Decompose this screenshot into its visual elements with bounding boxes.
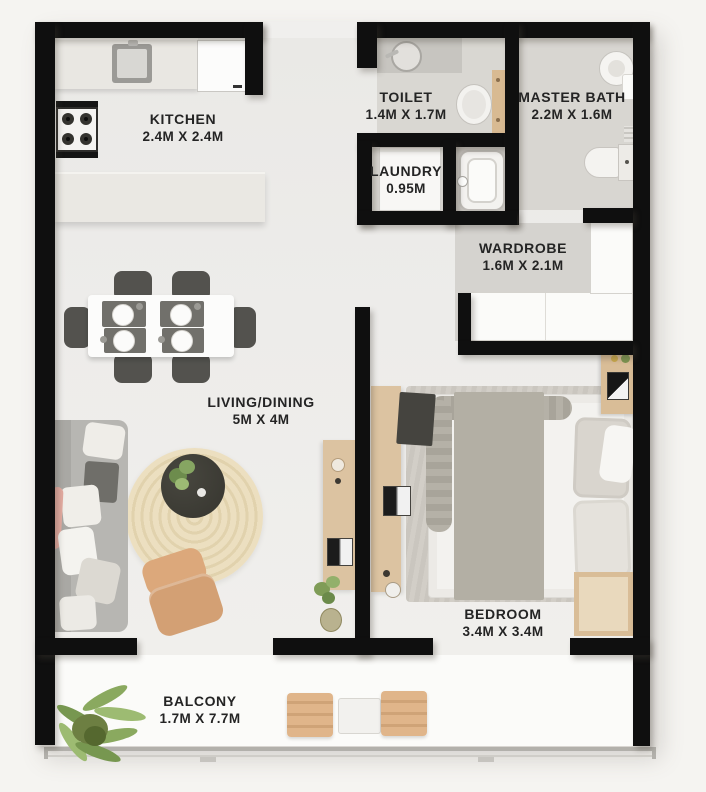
wall-left xyxy=(35,22,55,745)
sink-basin xyxy=(117,49,147,78)
room-dims: 3.4M X 3.4M xyxy=(463,623,544,640)
kitchen-sink xyxy=(112,44,152,83)
room-dims: 1.6M X 2.1M xyxy=(479,257,567,274)
room-label-bedroom: BEDROOM 3.4M X 3.4M xyxy=(463,606,544,640)
decor-knob xyxy=(331,458,345,472)
balcony-table xyxy=(338,698,381,734)
plant-icon xyxy=(175,478,189,490)
plant-pot xyxy=(320,608,342,632)
decor-dot xyxy=(335,478,341,484)
plant-icon xyxy=(621,354,630,363)
wall-top-left xyxy=(35,22,263,38)
wall-bottom-right xyxy=(570,638,650,655)
wardrobe-closet-column xyxy=(590,217,633,294)
toilet-seat xyxy=(462,90,486,119)
wall-bottom-left xyxy=(35,638,137,655)
burner-icon xyxy=(80,133,92,145)
phone xyxy=(607,372,629,400)
room-dims: 0.95M xyxy=(370,180,442,197)
cup-icon xyxy=(100,336,107,343)
balcony-stool xyxy=(287,693,333,737)
plant-icon xyxy=(179,460,195,474)
room-name: LAUNDRY xyxy=(370,163,442,180)
closet-division xyxy=(545,293,546,340)
room-name: WARDROBE xyxy=(479,240,567,257)
placemat xyxy=(162,328,204,353)
room-label-wardrobe: WARDROBE 1.6M X 2.1M xyxy=(479,240,567,274)
flush-button xyxy=(625,160,629,164)
fridge xyxy=(197,40,247,92)
tv-console-bedroom xyxy=(371,386,401,592)
room-name: BEDROOM xyxy=(463,606,544,623)
speaker xyxy=(383,486,411,516)
plant-icon xyxy=(322,592,335,604)
dining-chair xyxy=(114,353,152,383)
fern-center xyxy=(84,726,106,746)
bath-toilet xyxy=(584,147,620,178)
decor-dot xyxy=(383,570,390,577)
wall-masterbath-bottom xyxy=(583,208,633,223)
bench-cushion xyxy=(579,577,628,631)
room-dims: 1.7M X 7.7M xyxy=(160,710,241,727)
door-hinge xyxy=(496,78,500,82)
wall-top-right xyxy=(357,22,648,38)
sofa-pillow xyxy=(82,421,126,460)
room-label-kitchen: KITCHEN 2.4M X 2.4M xyxy=(143,111,224,145)
room-name: MASTER BATH xyxy=(518,89,625,106)
railing-tab xyxy=(200,757,216,762)
wall-living-bedroom xyxy=(355,307,370,655)
cup-icon xyxy=(197,488,206,497)
stove-fin-bottom xyxy=(56,152,98,158)
floor-plant xyxy=(310,574,354,636)
bathtub-basin xyxy=(467,158,497,203)
cup-icon xyxy=(136,303,143,310)
placemat xyxy=(160,301,204,327)
toilet-fixture xyxy=(456,84,492,125)
dining-table xyxy=(88,295,234,357)
railing-tab xyxy=(478,757,494,762)
placemat xyxy=(102,301,146,327)
bathtub-faucet-icon xyxy=(457,176,468,187)
coffee-table xyxy=(161,454,225,518)
placemat xyxy=(104,328,146,353)
toilet-sink xyxy=(391,41,422,72)
decor-gold-dot xyxy=(611,355,618,362)
nightstand xyxy=(601,350,635,414)
room-dims: 1.4M X 1.7M xyxy=(366,106,447,123)
wall-bottom-center xyxy=(273,638,433,655)
bathtub xyxy=(459,150,505,211)
bedroom-bench xyxy=(574,572,633,636)
toilet-door xyxy=(492,70,505,136)
room-name: LIVING/DINING xyxy=(207,394,314,411)
wall-toilet-masterbath xyxy=(505,22,519,225)
wall-wardrobe-stub xyxy=(458,293,471,348)
wall-entry-stub-right xyxy=(357,22,377,68)
plate-icon xyxy=(171,330,193,352)
tv-console-living xyxy=(323,440,355,590)
plant-icon xyxy=(326,576,340,588)
plate-icon xyxy=(113,330,135,352)
room-label-laundry: LAUNDRY 0.95M xyxy=(370,163,442,197)
burner-icon xyxy=(62,133,74,145)
wardrobe-closet-bottom xyxy=(458,292,633,341)
room-label-toilet: TOILET 1.4M X 1.7M xyxy=(366,89,447,123)
kitchen-island xyxy=(55,172,265,222)
room-name: TOILET xyxy=(366,89,447,106)
balcony-railing-cap xyxy=(652,747,656,759)
decor-round xyxy=(385,582,401,598)
room-dims: 2.2M X 1.6M xyxy=(518,106,625,123)
burner-icon xyxy=(80,113,92,125)
sink-faucet-icon xyxy=(128,40,138,46)
dining-chair xyxy=(172,353,210,383)
tv xyxy=(396,392,436,446)
plate-icon xyxy=(112,304,134,326)
wall-toilet-laundry xyxy=(357,133,505,147)
bed-pillow xyxy=(573,499,632,579)
speaker xyxy=(327,538,353,566)
stove xyxy=(56,107,98,152)
room-dims: 5M X 4M xyxy=(207,411,314,428)
sofa-pillow xyxy=(59,595,97,631)
entry-doorway-floor xyxy=(263,22,357,38)
cup-icon xyxy=(158,336,165,343)
wall-entry-stub-left xyxy=(245,22,263,95)
balcony-plant xyxy=(44,682,154,777)
plate-icon xyxy=(170,304,192,326)
burner-icon xyxy=(62,113,74,125)
bed-blanket xyxy=(454,392,544,600)
dining-chair xyxy=(64,307,91,348)
room-name: KITCHEN xyxy=(143,111,224,128)
room-label-master-bath: MASTER BATH 2.2M X 1.6M xyxy=(518,89,625,123)
wall-bath-row-bottom xyxy=(357,211,517,225)
balcony-stool xyxy=(381,691,427,736)
room-label-balcony: BALCONY 1.7M X 7.7M xyxy=(160,693,241,727)
fridge-handle xyxy=(233,85,242,88)
door-hinge xyxy=(496,118,500,122)
room-name: BALCONY xyxy=(160,693,241,710)
sofa-pillow xyxy=(60,484,102,528)
cup-icon xyxy=(194,303,201,310)
room-label-living-dining: LIVING/DINING 5M X 4M xyxy=(207,394,314,428)
room-dims: 2.4M X 2.4M xyxy=(143,128,224,145)
floor-plan: KITCHEN 2.4M X 2.4M TOILET 1.4M X 1.7M M… xyxy=(0,0,706,792)
wall-wardrobe-bedroom xyxy=(458,341,633,355)
